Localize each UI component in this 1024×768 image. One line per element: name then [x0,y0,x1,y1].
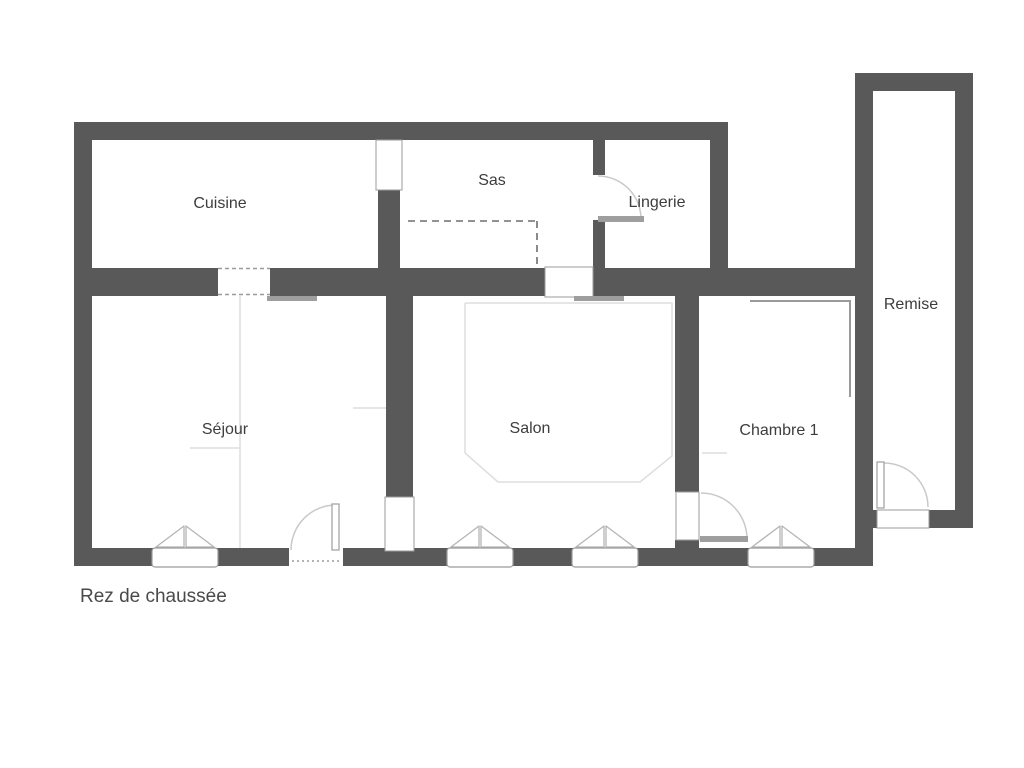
walls [74,73,973,566]
wall-salon-chambre-stub [675,540,699,552]
room-labels: Cuisine Sas Lingerie Remise Séjour Salon… [193,172,938,439]
wall-divider-segment [270,268,545,296]
room-label-chambre1: Chambre 1 [739,422,818,439]
wall-sas-lingerie-upper [593,140,605,175]
window-sill [572,548,638,567]
window-salon-left [447,526,513,567]
chambre-door-leaf [700,536,748,542]
window-sill [748,548,814,567]
window-sash-triangles [451,526,509,547]
entrance-door-leaf [332,504,339,550]
opening-entrance [289,548,343,566]
lingerie-door-leaf [598,216,644,222]
sliding-door-leaf-cuisine [267,296,317,301]
opening-remise [877,510,929,528]
window-sill [152,548,218,567]
floorplan-canvas: Cuisine Sas Lingerie Remise Séjour Salon… [0,0,1024,768]
wall-sas-lingerie-lower [593,220,605,268]
window-sash-triangles [576,526,634,547]
sas-dashed-zone [408,221,537,266]
entrance-door-arc [291,505,336,550]
window-sash-triangles [752,526,810,547]
window-sejour [152,526,218,567]
wall-east-shared [855,73,873,566]
opening-sejour-salon [385,497,414,551]
room-label-sejour: Séjour [202,421,249,438]
wall-remise-right [955,73,973,528]
room-label-lingerie: Lingerie [629,194,686,211]
openings [218,140,929,566]
opening-sas-salon [545,267,593,297]
wall-divider-segment [92,268,218,296]
room-label-salon: Salon [510,420,551,437]
wall-salon-chambre [675,296,699,492]
wall-cuisine-sas [378,190,400,268]
sliding-door-leaf-sas [574,296,624,301]
window-sash-triangles [156,526,214,547]
salon-faint-outline [465,303,672,482]
window-sill [447,548,513,567]
room-label-sas: Sas [478,172,506,189]
floor-caption: Rez de chaussée [80,586,227,607]
chambre-thin-partition [750,301,851,397]
remise-door-leaf [877,462,884,508]
opening-salon-chambre [676,492,699,540]
chambre-door-arc [701,493,747,539]
opening-cuisine-sejour [218,267,270,297]
room-label-cuisine: Cuisine [193,195,246,212]
wall-remise-bottom-segment [873,510,877,528]
window-salon-right [572,526,638,567]
remise-door-arc [884,463,928,507]
window-chambre [748,526,814,567]
wall-divider-segment [593,268,855,296]
wall-top [74,122,728,140]
wall-remise-bottom-segment [929,510,955,528]
room-label-remise: Remise [884,296,938,313]
opening-cuisine-sas [376,140,402,190]
wall-sejour-salon [386,296,413,498]
wall-left [74,122,92,566]
